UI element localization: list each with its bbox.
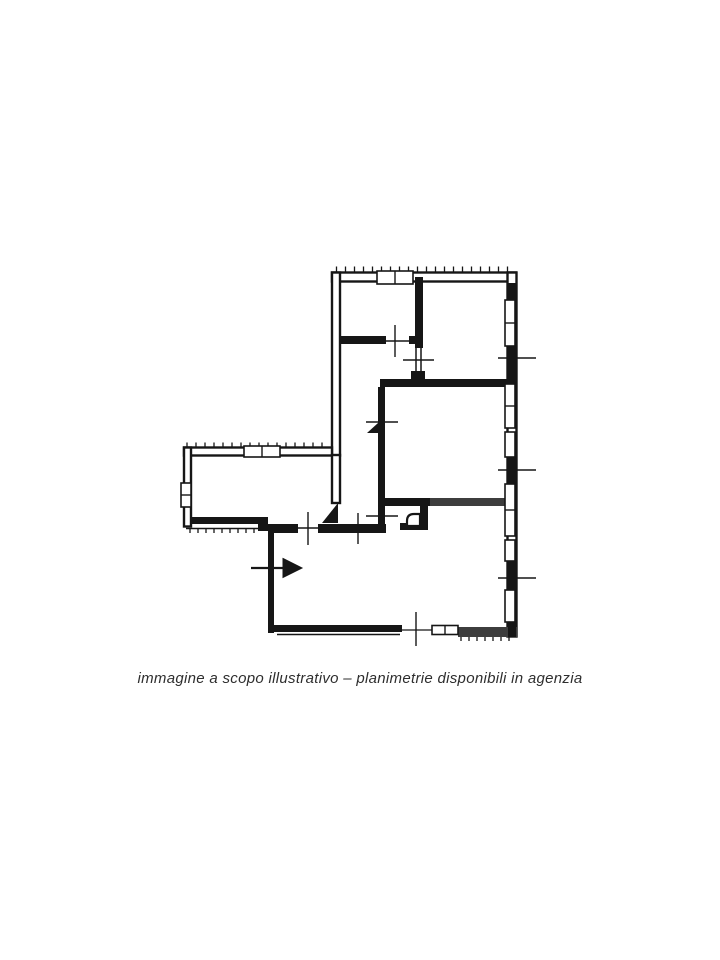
floor-plan	[0, 0, 720, 960]
wall	[382, 498, 430, 506]
wall	[190, 517, 258, 524]
wall	[273, 625, 402, 632]
wall	[508, 561, 516, 590]
wall	[508, 283, 516, 300]
page: immagine a scopo illustrativo – planimet…	[0, 0, 720, 960]
door-leaf-symbol	[322, 503, 338, 523]
door-jamb-detail	[407, 514, 420, 526]
wall-outline	[332, 273, 516, 282]
wall	[508, 346, 516, 384]
wall	[430, 498, 508, 506]
window-symbol	[505, 432, 515, 457]
window-symbol	[505, 590, 515, 622]
wall	[318, 524, 386, 533]
wall	[340, 336, 386, 344]
wall	[409, 336, 421, 344]
wall-outline	[332, 273, 340, 456]
wall-outline	[332, 455, 340, 503]
wall	[508, 622, 516, 637]
floor-plan-svg	[0, 0, 720, 960]
wall	[380, 379, 508, 387]
door-leaf-symbol	[367, 423, 378, 433]
caption-text: immagine a scopo illustrativo – planimet…	[0, 668, 720, 692]
entrance-arrow-icon	[283, 559, 302, 578]
wall	[268, 531, 274, 633]
window-symbol	[505, 540, 515, 561]
